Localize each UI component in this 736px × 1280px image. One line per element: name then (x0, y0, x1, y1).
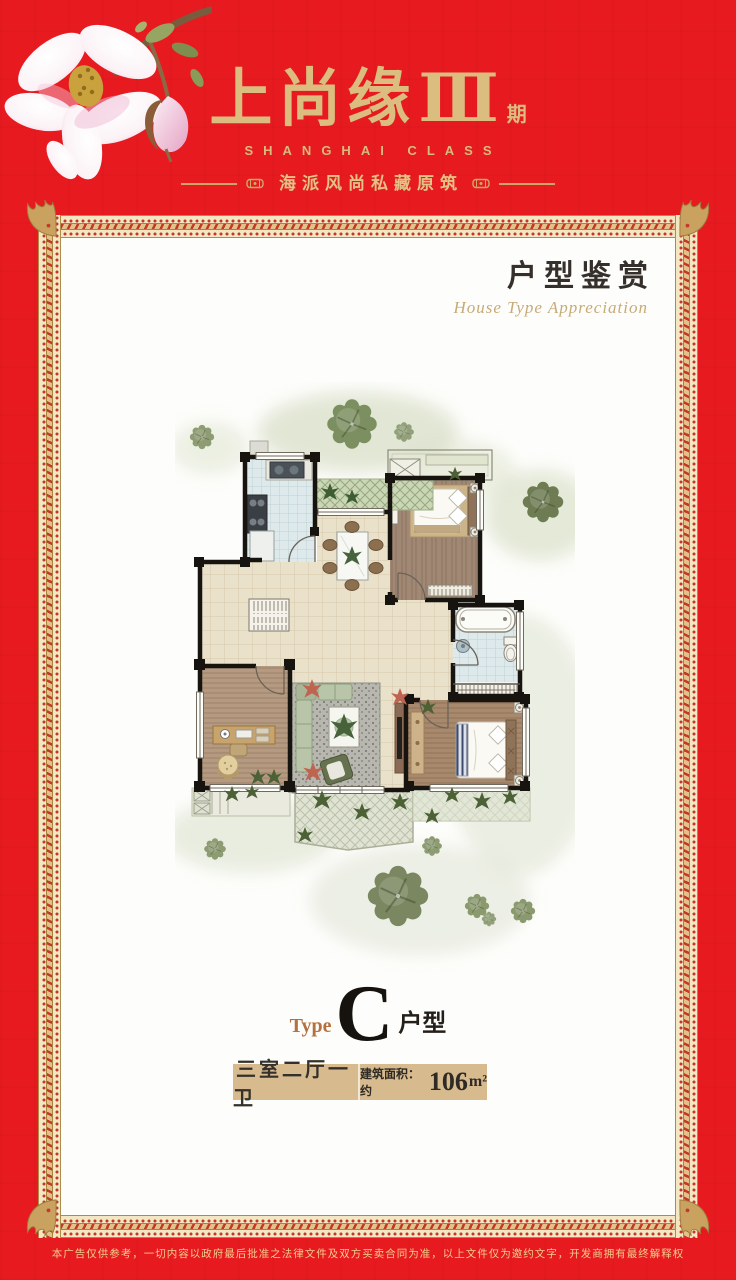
area-number: 106 (429, 1069, 468, 1095)
window (517, 612, 524, 670)
tagline-rule-right (499, 183, 555, 185)
tv (397, 717, 402, 759)
tagline-rule-left (181, 183, 237, 185)
frame-band-left (38, 215, 61, 1238)
frame-corner-ornament-top-right (678, 200, 716, 238)
spec-bar: 三室二厅一卫 建筑面积：约 106 m² (233, 1064, 487, 1100)
title-phase-suffix: 期 (507, 105, 527, 125)
scroll-ornament-left (246, 177, 264, 190)
title-english: SHANGHAI CLASS (0, 143, 736, 158)
section-subtitle: House Type Appreciation (453, 298, 648, 318)
frame-band-top (38, 215, 698, 238)
scroll-ornament-right (472, 177, 490, 190)
section-title: 户型鉴赏 (507, 262, 655, 292)
window (477, 490, 484, 530)
title-chinese: 上尚缘 (209, 68, 416, 131)
frame-band-right (675, 215, 698, 1238)
window (523, 708, 530, 776)
area-unit: m² (469, 1073, 487, 1091)
content-panel: 户型鉴赏 House Type Appreciation (61, 238, 675, 1215)
area-label: 建筑面积：约 106 m² (360, 1064, 487, 1100)
frame-corner-ornament-bottom-right (678, 1198, 716, 1236)
window (430, 785, 508, 792)
frame-band-bottom (38, 1215, 698, 1238)
type-letter: C (336, 982, 394, 1048)
unit-type-block: Type C 户型 (61, 982, 675, 1048)
disclaimer-text: 本广告仅供参考，一切内容以政府最后批准之法律文件及双方买卖合同为准，以上文件仅为… (0, 1246, 736, 1261)
hall-bookshelf (249, 599, 289, 631)
window (256, 453, 304, 460)
floor-plan (175, 382, 575, 982)
type-label: Type (290, 1015, 332, 1038)
area-prefix: 建筑面积：约 (360, 1065, 428, 1099)
frame-corner-ornament-bottom-left (20, 1198, 58, 1236)
project-title: 上尚缘 Ⅲ 期 (0, 68, 736, 131)
tagline-text: 海派风尚私藏原筑 (273, 175, 463, 192)
window (318, 509, 384, 516)
poster-page: 上尚缘 Ⅲ 期 SHANGHAI CLASS 海派风尚私藏原筑 (0, 0, 736, 1280)
type-suffix: 户型 (398, 1003, 446, 1038)
rooms-label: 三室二厅一卫 (233, 1064, 360, 1100)
frame-corner-ornament-top-left (20, 200, 58, 238)
tagline-row: 海派风尚私藏原筑 (0, 175, 736, 192)
sliding-door (296, 787, 384, 794)
window (210, 785, 280, 792)
title-phase-numeral: Ⅲ (418, 70, 498, 131)
window (197, 692, 204, 758)
